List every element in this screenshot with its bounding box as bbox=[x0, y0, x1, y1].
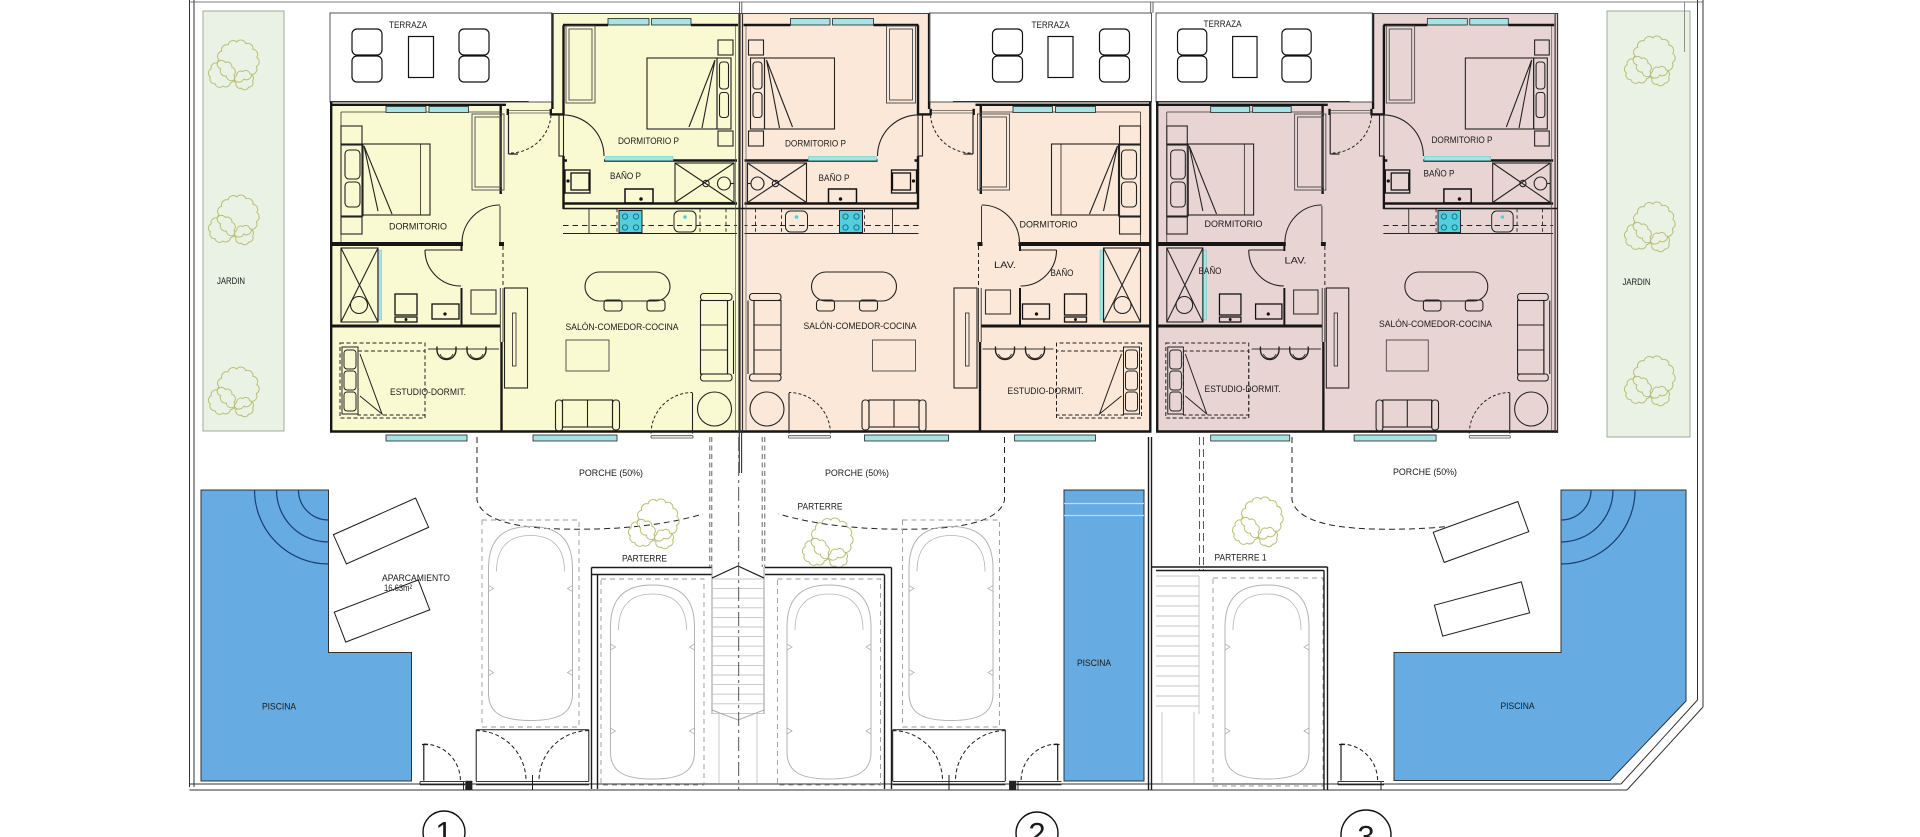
svg-text:PORCHE (50%): PORCHE (50%) bbox=[579, 468, 643, 479]
svg-text:ESTUDIO-DORMIT.: ESTUDIO-DORMIT. bbox=[390, 387, 466, 398]
svg-text:PISCINA: PISCINA bbox=[1077, 658, 1112, 669]
svg-text:16.63m²: 16.63m² bbox=[384, 583, 413, 594]
svg-text:JARDIN: JARDIN bbox=[217, 276, 245, 287]
svg-text:BAÑO: BAÑO bbox=[1051, 268, 1074, 279]
svg-text:ESTUDIO-DORMIT.: ESTUDIO-DORMIT. bbox=[1008, 386, 1084, 397]
svg-text:DORMITORIO P: DORMITORIO P bbox=[785, 139, 846, 150]
svg-text:JARDIN: JARDIN bbox=[1623, 277, 1651, 288]
svg-text:2: 2 bbox=[1028, 816, 1045, 837]
svg-text:DORMITORIO P: DORMITORIO P bbox=[618, 136, 679, 147]
svg-text:PARTERRE: PARTERRE bbox=[798, 502, 843, 513]
svg-text:PISCINA: PISCINA bbox=[1501, 701, 1536, 712]
svg-text:DORMITORIO: DORMITORIO bbox=[389, 222, 447, 233]
svg-text:TERRAZA: TERRAZA bbox=[1204, 19, 1243, 30]
svg-text:ESTUDIO-DORMIT.: ESTUDIO-DORMIT. bbox=[1205, 384, 1281, 395]
svg-text:BAÑO P: BAÑO P bbox=[819, 173, 850, 184]
svg-text:BAÑO P: BAÑO P bbox=[1424, 169, 1455, 180]
svg-text:TERRAZA: TERRAZA bbox=[389, 20, 428, 31]
svg-text:DORMITORIO: DORMITORIO bbox=[1205, 219, 1263, 230]
svg-text:PORCHE (50%): PORCHE (50%) bbox=[1393, 467, 1457, 478]
svg-text:PARTERRE 1: PARTERRE 1 bbox=[1215, 553, 1267, 564]
svg-text:LAV.: LAV. bbox=[994, 260, 1016, 271]
svg-text:3: 3 bbox=[1357, 819, 1374, 837]
svg-text:DORMITORIO P: DORMITORIO P bbox=[1432, 135, 1493, 146]
svg-text:BAÑO: BAÑO bbox=[1199, 266, 1222, 277]
svg-text:PISCINA: PISCINA bbox=[262, 702, 297, 713]
svg-text:1: 1 bbox=[435, 815, 452, 837]
svg-text:SALÓN-COMEDOR-COCINA: SALÓN-COMEDOR-COCINA bbox=[804, 321, 918, 332]
svg-text:BAÑO P: BAÑO P bbox=[610, 171, 641, 182]
svg-text:SALÓN-COMEDOR-COCINA: SALÓN-COMEDOR-COCINA bbox=[1379, 319, 1493, 330]
svg-text:TERRAZA: TERRAZA bbox=[1032, 20, 1071, 31]
svg-text:LAV.: LAV. bbox=[1285, 256, 1307, 267]
svg-text:PORCHE (50%): PORCHE (50%) bbox=[825, 468, 889, 479]
svg-text:DORMITORIO: DORMITORIO bbox=[1020, 220, 1078, 231]
svg-text:SALÓN-COMEDOR-COCINA: SALÓN-COMEDOR-COCINA bbox=[566, 322, 680, 333]
svg-text:PARTERRE: PARTERRE bbox=[622, 554, 667, 565]
